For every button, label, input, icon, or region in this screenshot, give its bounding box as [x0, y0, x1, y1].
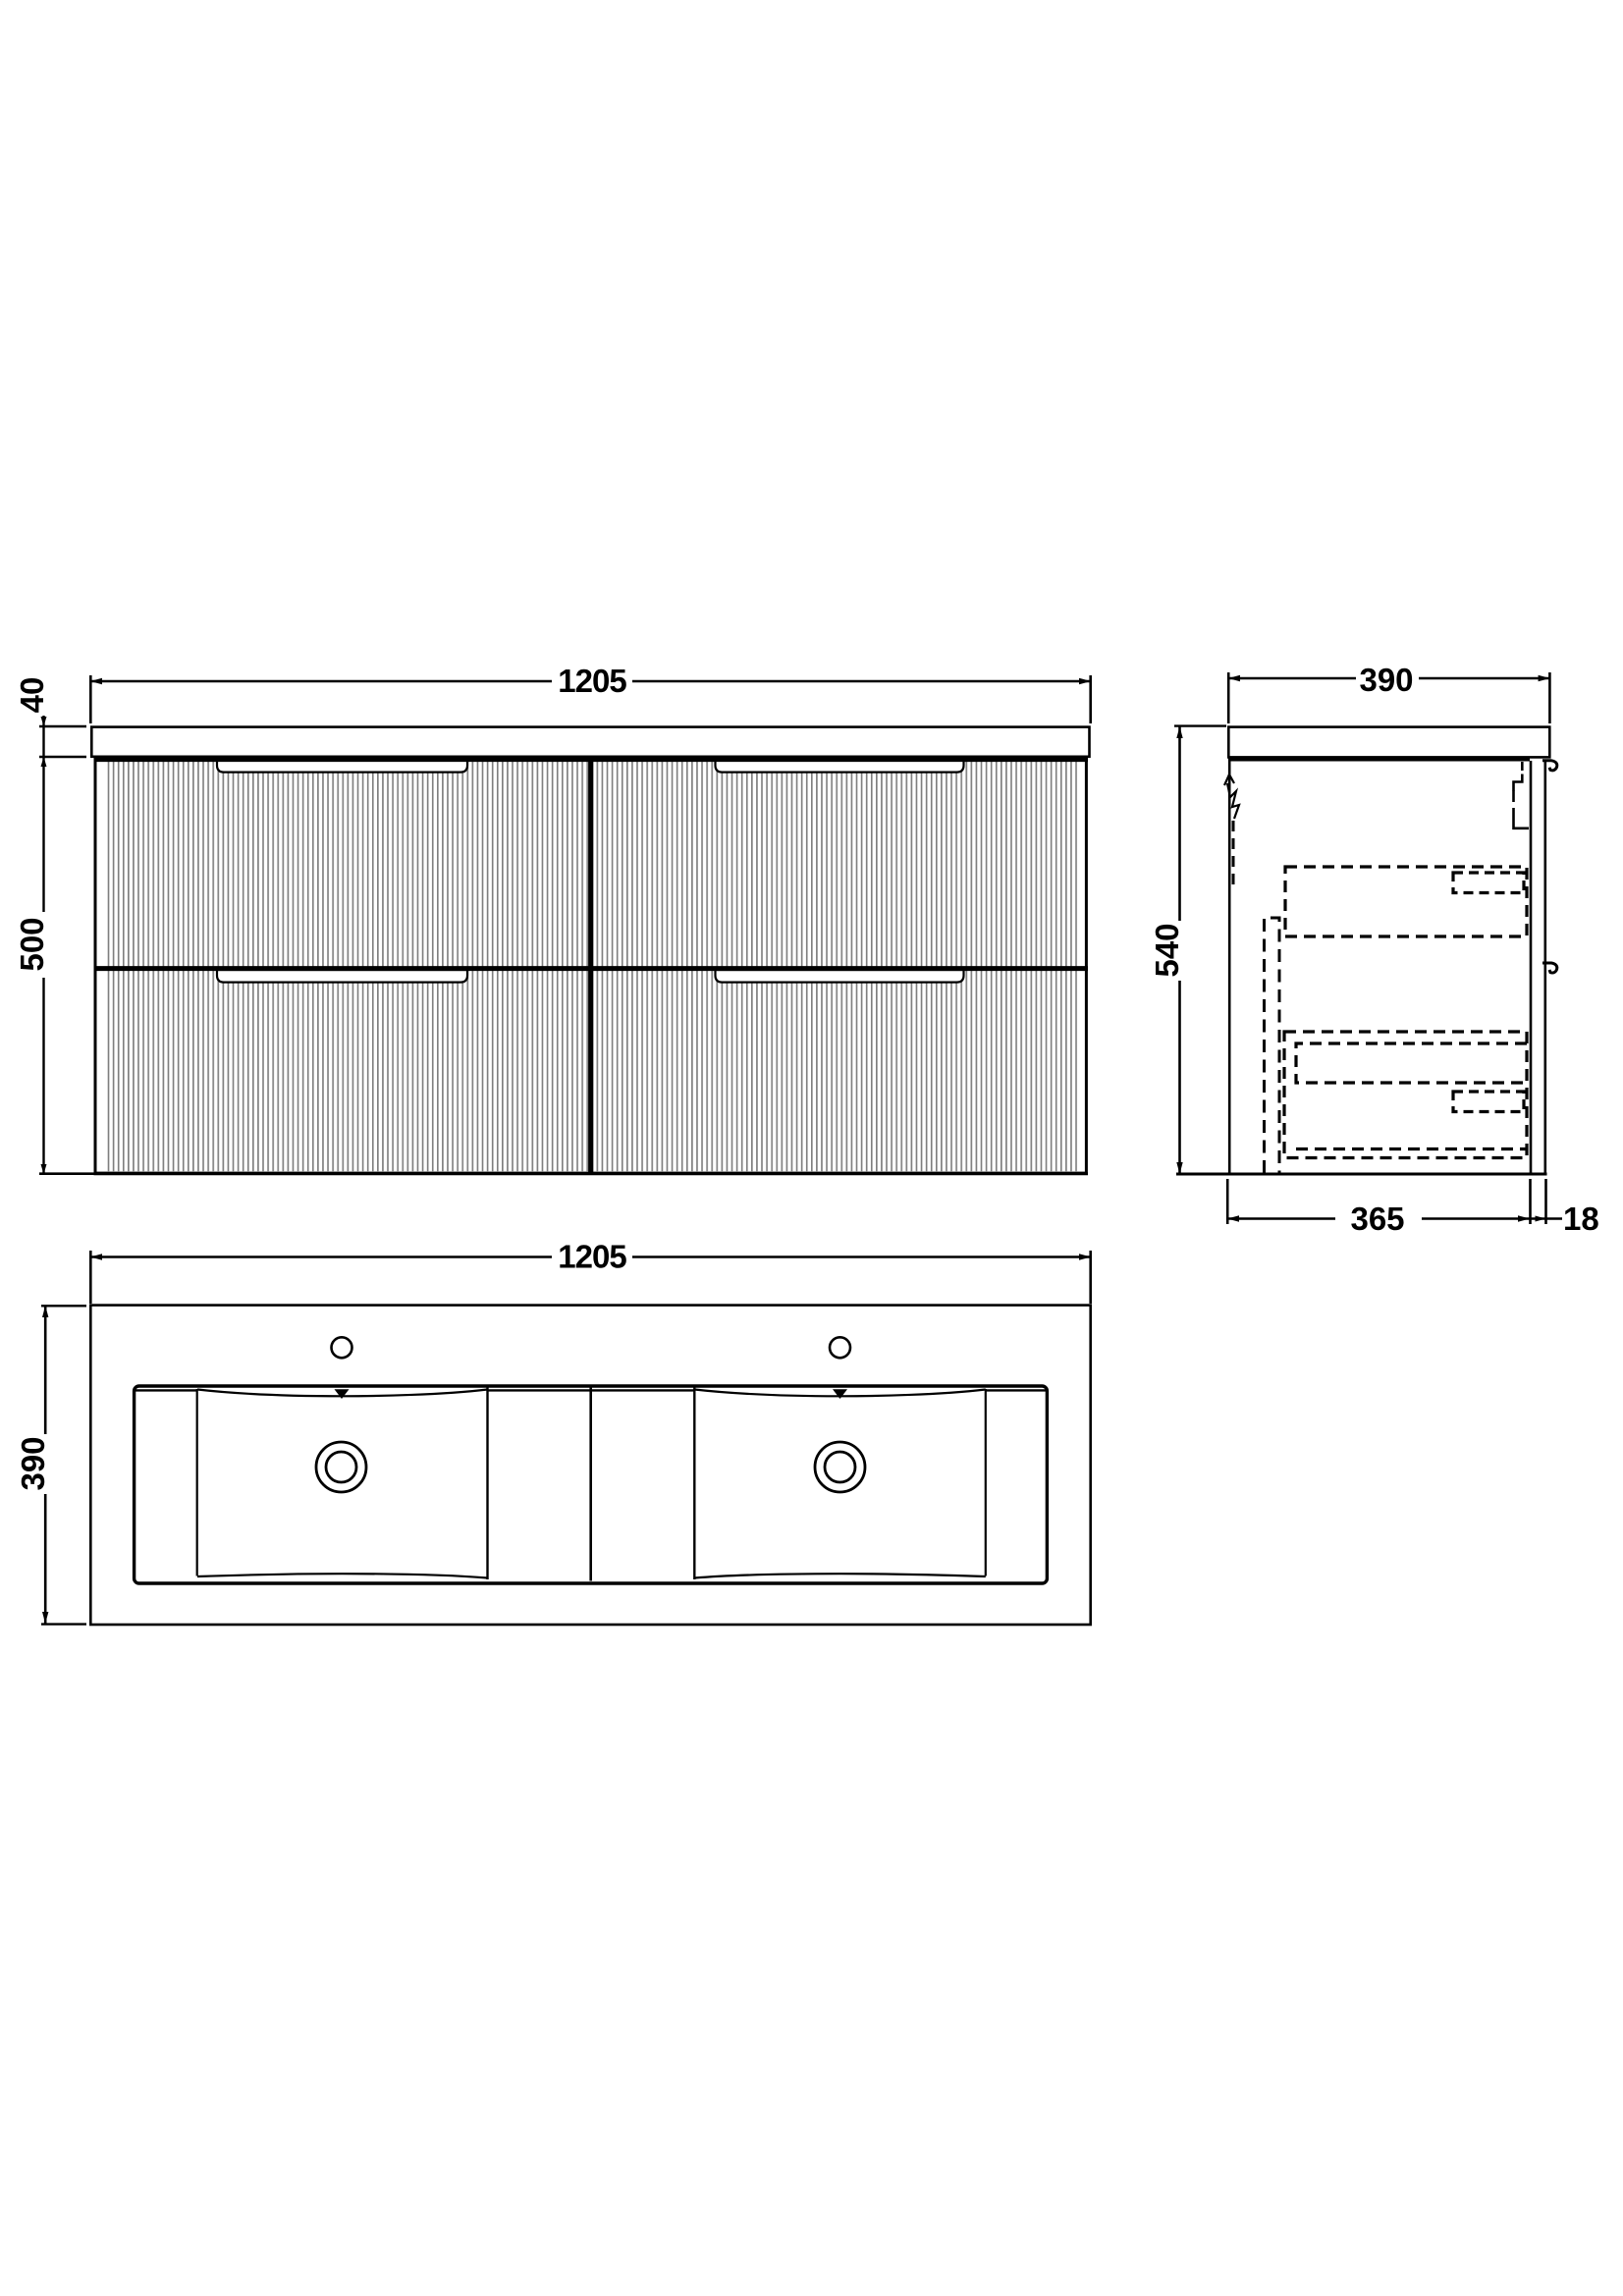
- svg-text:390: 390: [1359, 662, 1413, 698]
- svg-text:540: 540: [1149, 923, 1185, 977]
- svg-text:390: 390: [15, 1436, 51, 1490]
- svg-text:40: 40: [14, 677, 50, 714]
- svg-text:365: 365: [1350, 1201, 1404, 1237]
- svg-text:18: 18: [1563, 1201, 1599, 1237]
- svg-text:1205: 1205: [558, 1239, 626, 1275]
- svg-text:1205: 1205: [558, 663, 626, 699]
- svg-text:500: 500: [14, 917, 50, 971]
